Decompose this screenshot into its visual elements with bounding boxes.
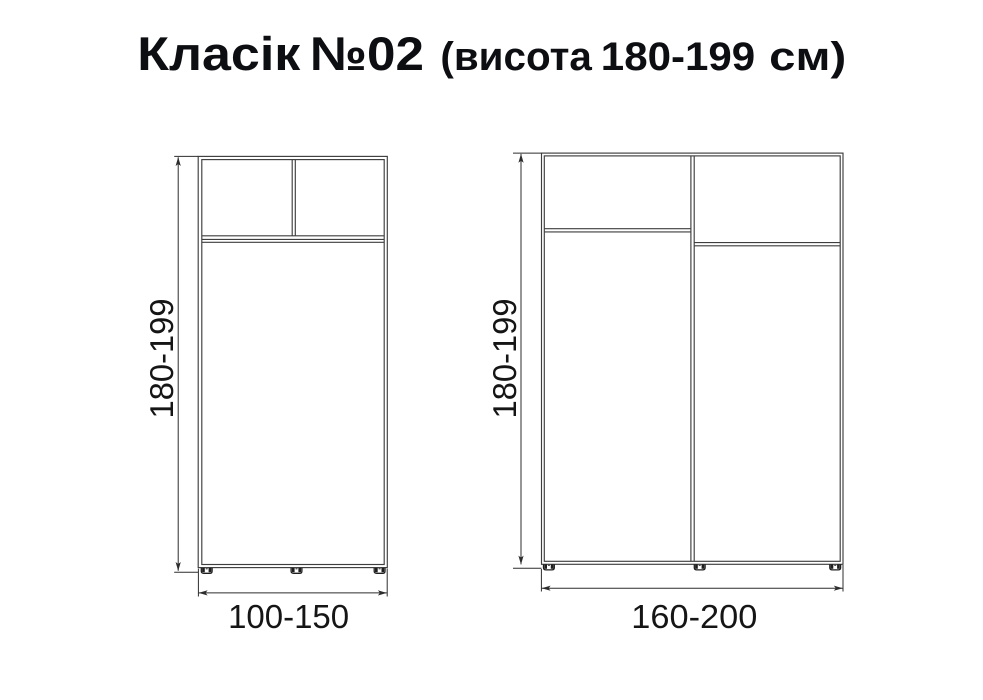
svg-text:Класік: Класік [137,28,300,81]
svg-text:100-150: 100-150 [228,599,349,636]
svg-text:160-200: 160-200 [631,599,757,636]
svg-text:см): см) [769,35,846,79]
svg-text:180-199: 180-199 [601,35,755,79]
svg-text:(висота: (висота [440,35,592,79]
svg-text:№02: №02 [310,28,424,81]
